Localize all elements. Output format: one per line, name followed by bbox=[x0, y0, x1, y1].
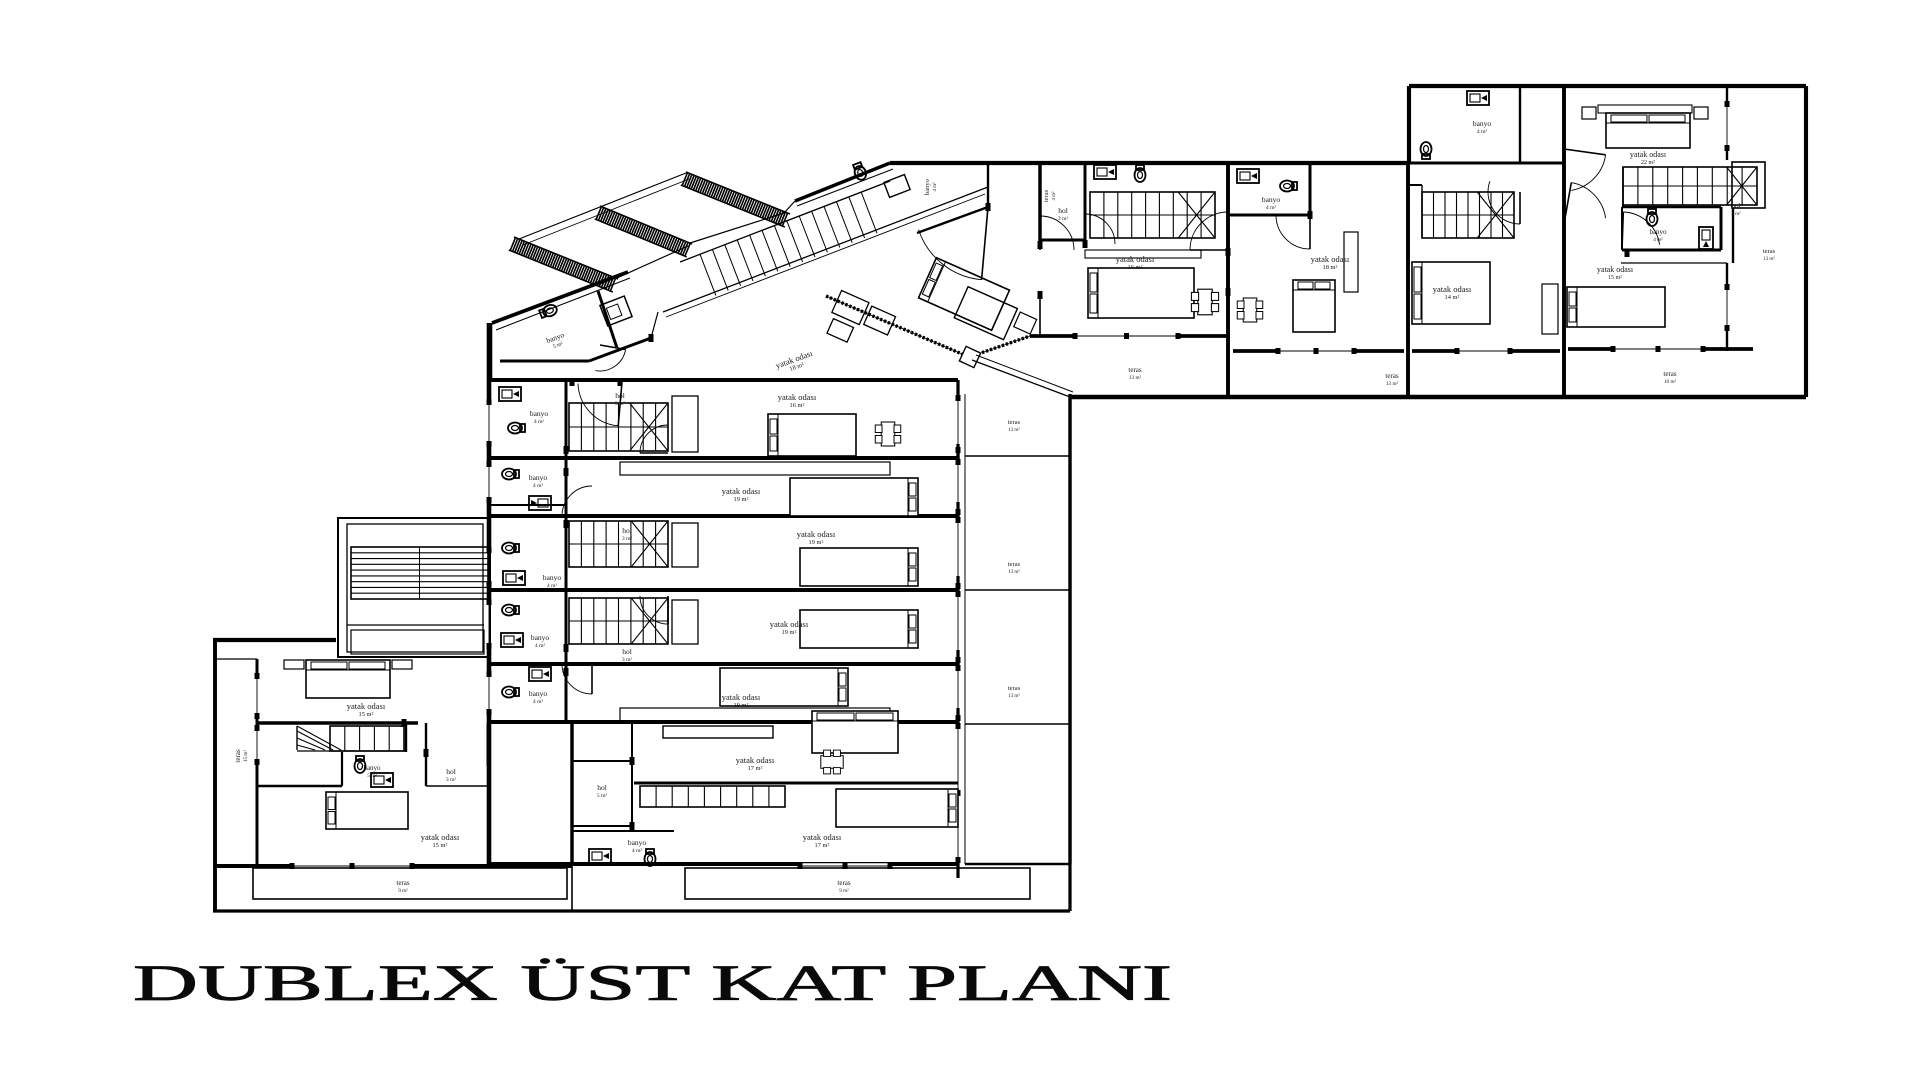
svg-text:4 m²: 4 m² bbox=[632, 848, 643, 854]
svg-text:13 m²: 13 m² bbox=[1129, 375, 1142, 381]
svg-text:yatak odası: yatak odası bbox=[778, 392, 817, 402]
svg-text:teras: teras bbox=[1043, 189, 1050, 202]
svg-text:hol: hol bbox=[446, 767, 456, 776]
svg-text:banyo: banyo bbox=[530, 409, 549, 418]
svg-text:13 m²: 13 m² bbox=[1008, 693, 1020, 699]
svg-text:yatak odası: yatak odası bbox=[1116, 254, 1155, 264]
svg-text:yatak odası: yatak odası bbox=[803, 832, 842, 842]
svg-text:banyo: banyo bbox=[363, 764, 381, 772]
svg-text:4 m²: 4 m² bbox=[1477, 129, 1488, 135]
svg-text:17 m²: 17 m² bbox=[748, 765, 763, 772]
svg-text:16 m²: 16 m² bbox=[1128, 264, 1143, 271]
svg-text:banyo: banyo bbox=[529, 473, 548, 482]
svg-text:teras: teras bbox=[396, 879, 409, 887]
svg-text:4 m²: 4 m² bbox=[547, 583, 558, 589]
svg-text:yatak odası: yatak odası bbox=[347, 701, 386, 711]
svg-text:yatak odası: yatak odası bbox=[1311, 254, 1350, 264]
svg-text:4 m²: 4 m² bbox=[535, 643, 546, 649]
svg-text:teras: teras bbox=[1008, 419, 1021, 426]
svg-text:4 m²: 4 m² bbox=[1051, 191, 1057, 200]
svg-text:yatak odası: yatak odası bbox=[736, 755, 775, 765]
svg-text:15 m²: 15 m² bbox=[1608, 275, 1622, 281]
svg-text:9 m²: 9 m² bbox=[398, 888, 408, 894]
svg-text:yatak odası: yatak odası bbox=[770, 619, 809, 629]
svg-text:banyo: banyo bbox=[628, 838, 647, 847]
svg-text:hol: hol bbox=[615, 391, 625, 400]
svg-text:15 m²: 15 m² bbox=[433, 842, 448, 849]
svg-text:14 m²: 14 m² bbox=[1445, 294, 1460, 301]
svg-text:banyo: banyo bbox=[1649, 228, 1667, 236]
svg-text:4 m²: 4 m² bbox=[533, 483, 544, 489]
svg-text:3 m²: 3 m² bbox=[622, 657, 633, 663]
svg-text:5 m²: 5 m² bbox=[597, 793, 608, 799]
svg-text:teras: teras bbox=[1008, 685, 1021, 692]
svg-text:3 m²: 3 m² bbox=[622, 536, 633, 542]
svg-text:5 m²: 5 m² bbox=[367, 773, 377, 779]
svg-text:banyo: banyo bbox=[543, 573, 562, 582]
svg-text:yatak odası: yatak odası bbox=[722, 692, 761, 702]
svg-text:4 m²: 4 m² bbox=[1266, 205, 1277, 211]
svg-text:hol: hol bbox=[597, 783, 607, 792]
svg-text:hol: hol bbox=[622, 526, 632, 535]
svg-text:yatak odası: yatak odası bbox=[421, 832, 460, 842]
svg-text:banyo: banyo bbox=[1262, 195, 1281, 204]
svg-text:teras: teras bbox=[1008, 561, 1021, 568]
svg-text:yatak odası: yatak odası bbox=[1630, 150, 1667, 159]
svg-text:yatak odası: yatak odası bbox=[1433, 284, 1472, 294]
svg-text:3 m²: 3 m² bbox=[446, 777, 457, 783]
svg-text:19 m²: 19 m² bbox=[734, 496, 749, 503]
svg-text:13 m²: 13 m² bbox=[1008, 427, 1020, 433]
svg-text:teras: teras bbox=[1128, 366, 1141, 374]
svg-text:22 m²: 22 m² bbox=[1641, 160, 1655, 166]
svg-text:DUBLEX ÜST KAT PLANI: DUBLEX ÜST KAT PLANI bbox=[133, 956, 1172, 1012]
svg-text:4 m²: 4 m² bbox=[932, 182, 938, 191]
svg-text:yatak odası: yatak odası bbox=[1597, 265, 1634, 274]
svg-text:yatak odası: yatak odası bbox=[722, 486, 761, 496]
svg-text:18 m²: 18 m² bbox=[1323, 264, 1338, 271]
svg-text:13 m²: 13 m² bbox=[1008, 569, 1020, 575]
svg-text:16 m²: 16 m² bbox=[1664, 379, 1677, 385]
svg-text:teras: teras bbox=[1385, 372, 1398, 380]
svg-text:15 m²: 15 m² bbox=[243, 750, 249, 763]
svg-text:teras: teras bbox=[1763, 248, 1776, 255]
svg-text:19 m²: 19 m² bbox=[782, 629, 797, 636]
svg-text:banyo: banyo bbox=[1473, 119, 1492, 128]
svg-text:banyo: banyo bbox=[531, 633, 550, 642]
svg-text:15 m²: 15 m² bbox=[359, 711, 374, 718]
svg-text:19 m²: 19 m² bbox=[734, 702, 749, 709]
svg-text:16 m²: 16 m² bbox=[790, 402, 805, 409]
svg-text:3 m²: 3 m² bbox=[615, 401, 626, 407]
svg-text:13 m²: 13 m² bbox=[1386, 381, 1399, 387]
svg-text:13 m²: 13 m² bbox=[1763, 256, 1775, 262]
svg-text:teras: teras bbox=[234, 749, 242, 762]
svg-text:hol: hol bbox=[1058, 206, 1068, 215]
svg-text:4 m²: 4 m² bbox=[534, 419, 545, 425]
svg-text:yatak odası: yatak odası bbox=[797, 529, 836, 539]
svg-text:teras: teras bbox=[837, 879, 850, 887]
svg-text:17 m²: 17 m² bbox=[815, 842, 830, 849]
svg-text:9 m²: 9 m² bbox=[839, 888, 849, 894]
svg-text:19 m²: 19 m² bbox=[809, 539, 824, 546]
svg-text:hol: hol bbox=[622, 647, 632, 656]
svg-text:banyo: banyo bbox=[924, 179, 931, 195]
svg-text:3 m²: 3 m² bbox=[1058, 216, 1069, 222]
svg-text:4 m²: 4 m² bbox=[533, 699, 544, 705]
svg-text:teras: teras bbox=[1663, 370, 1676, 378]
svg-text:banyo: banyo bbox=[529, 689, 548, 698]
